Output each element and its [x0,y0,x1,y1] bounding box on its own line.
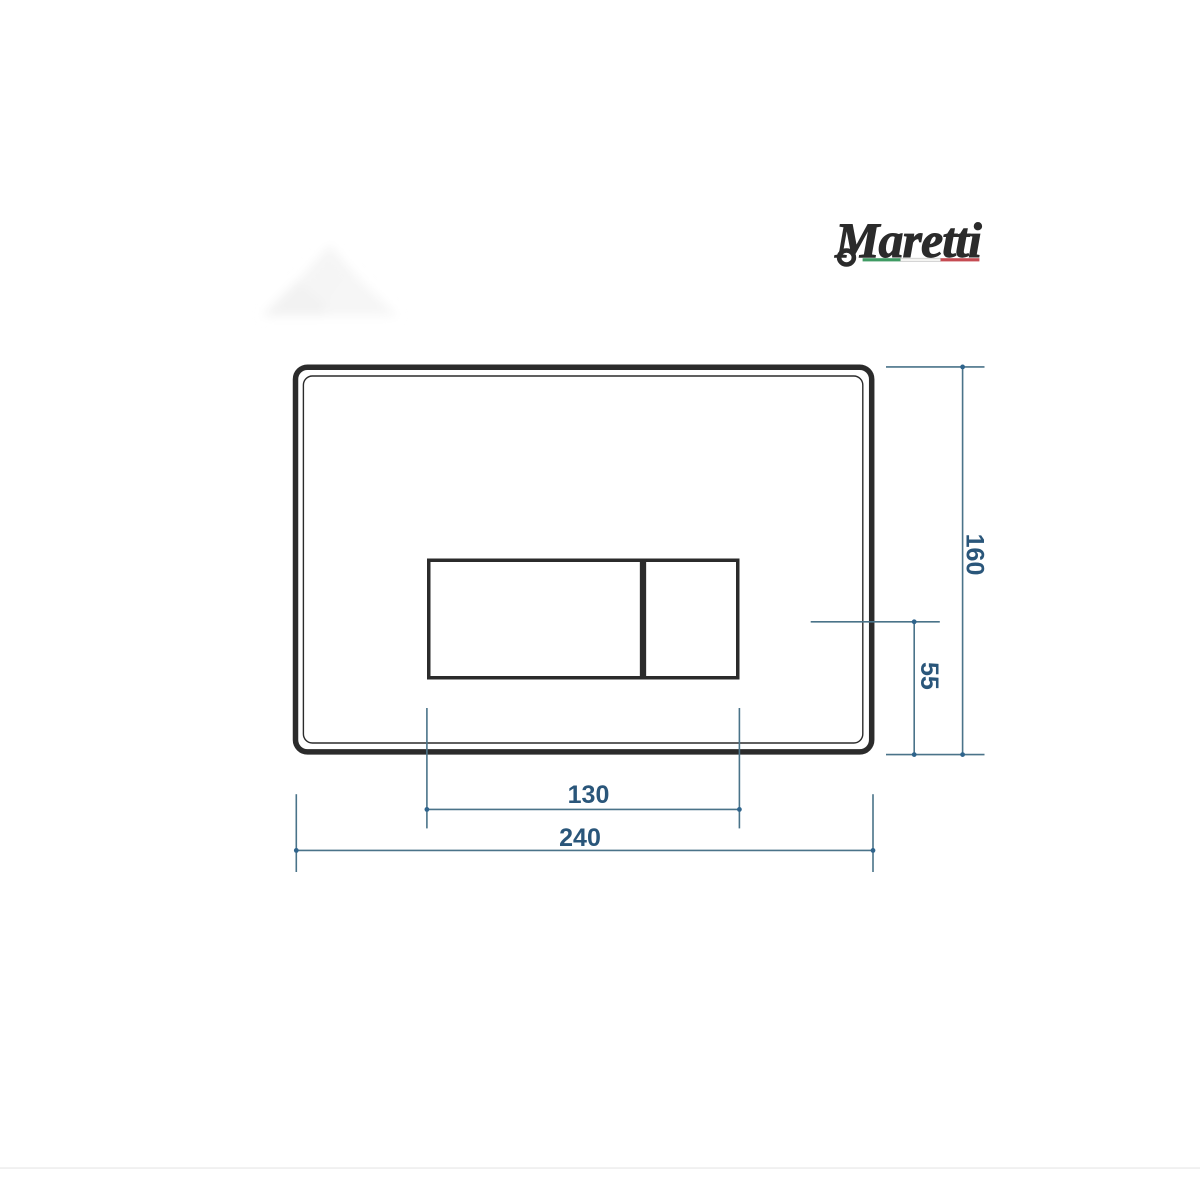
svg-text:240: 240 [559,824,601,852]
svg-text:55: 55 [915,662,943,690]
svg-text:160: 160 [961,534,989,576]
svg-text:130: 130 [568,781,610,809]
